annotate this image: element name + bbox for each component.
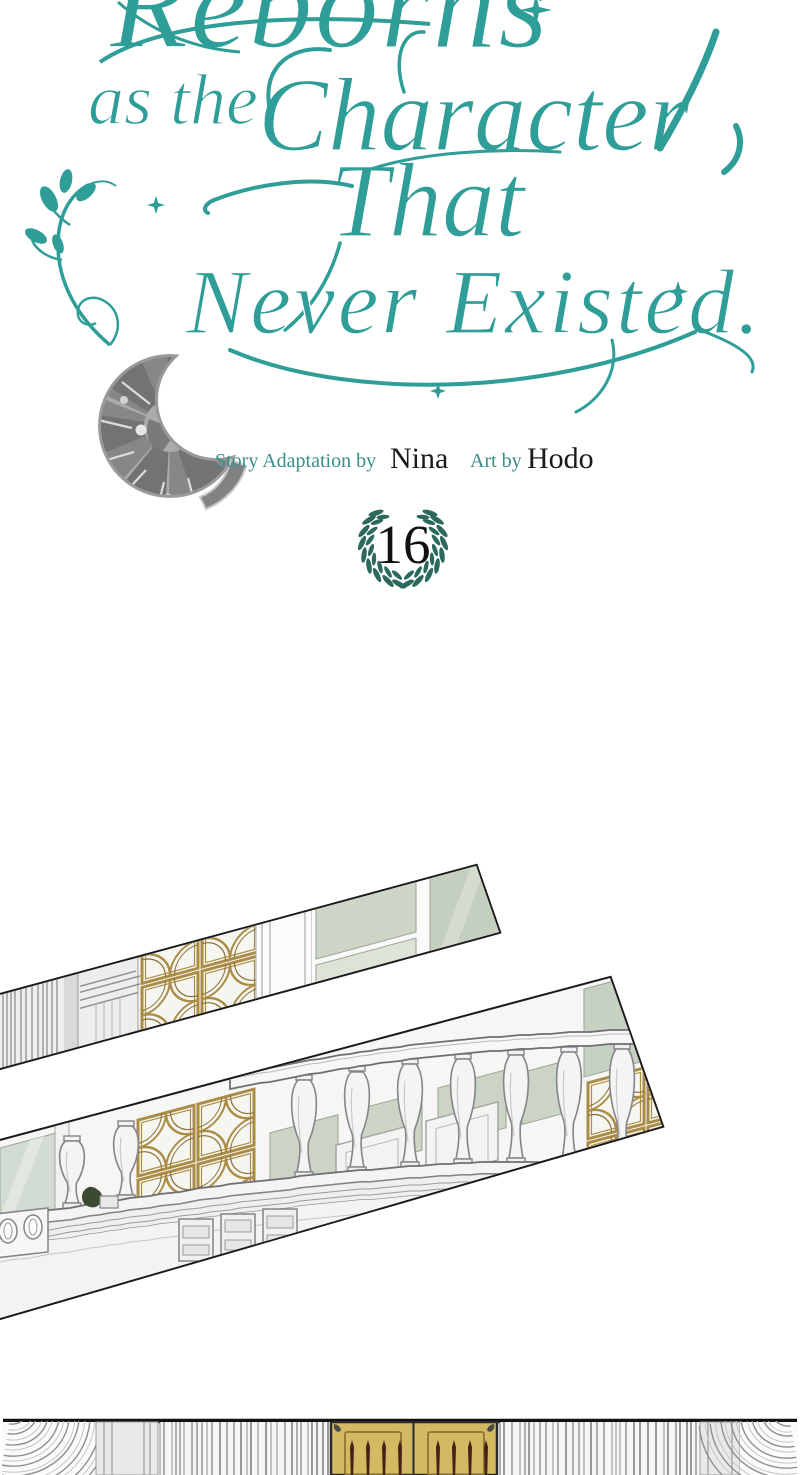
svg-text:Art by: Art by [470,450,522,472]
svg-text:Never Existed.: Never Existed. [185,251,760,353]
svg-text:Nina: Nina [390,442,448,475]
svg-text:That: That [330,142,527,259]
svg-text:as the: as the [88,60,258,140]
svg-text:Story Adaptation by: Story Adaptation by [215,450,376,472]
svg-text:Hodo: Hodo [527,442,594,475]
svg-text:16: 16 [376,514,431,575]
